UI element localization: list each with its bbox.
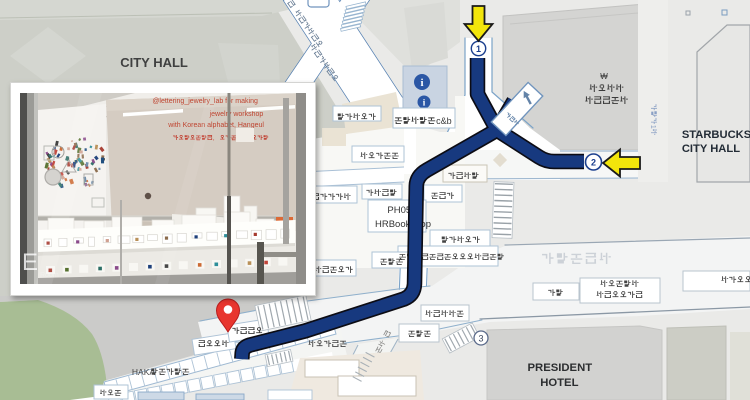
svg-text:STARBUCKS: STARBUCKS	[682, 129, 750, 141]
svg-text:CITY HALL: CITY HALL	[682, 143, 740, 155]
svg-text:HAKA: HAKA	[132, 367, 155, 377]
svg-text:c&b: c&b	[436, 116, 452, 126]
svg-text:,: ,	[213, 135, 215, 142]
svg-text:1: 1	[649, 125, 658, 129]
svg-text:PRESIDENT: PRESIDENT	[528, 362, 593, 374]
svg-text:PH05: PH05	[387, 205, 411, 216]
svg-text:jewelry workshop: jewelry workshop	[209, 111, 264, 118]
svg-text:CITY HALL: CITY HALL	[120, 55, 188, 70]
svg-text:₩: ₩	[600, 72, 608, 81]
svg-text:2: 2	[591, 158, 596, 168]
svg-text:i: i	[420, 77, 423, 89]
svg-text:HOTEL: HOTEL	[540, 377, 578, 389]
svg-text:1: 1	[476, 44, 481, 54]
svg-text:with Korean alphabet, Hangeul: with Korean alphabet, Hangeul	[167, 122, 264, 129]
svg-text:E: E	[22, 249, 38, 276]
svg-text:3: 3	[478, 334, 483, 344]
